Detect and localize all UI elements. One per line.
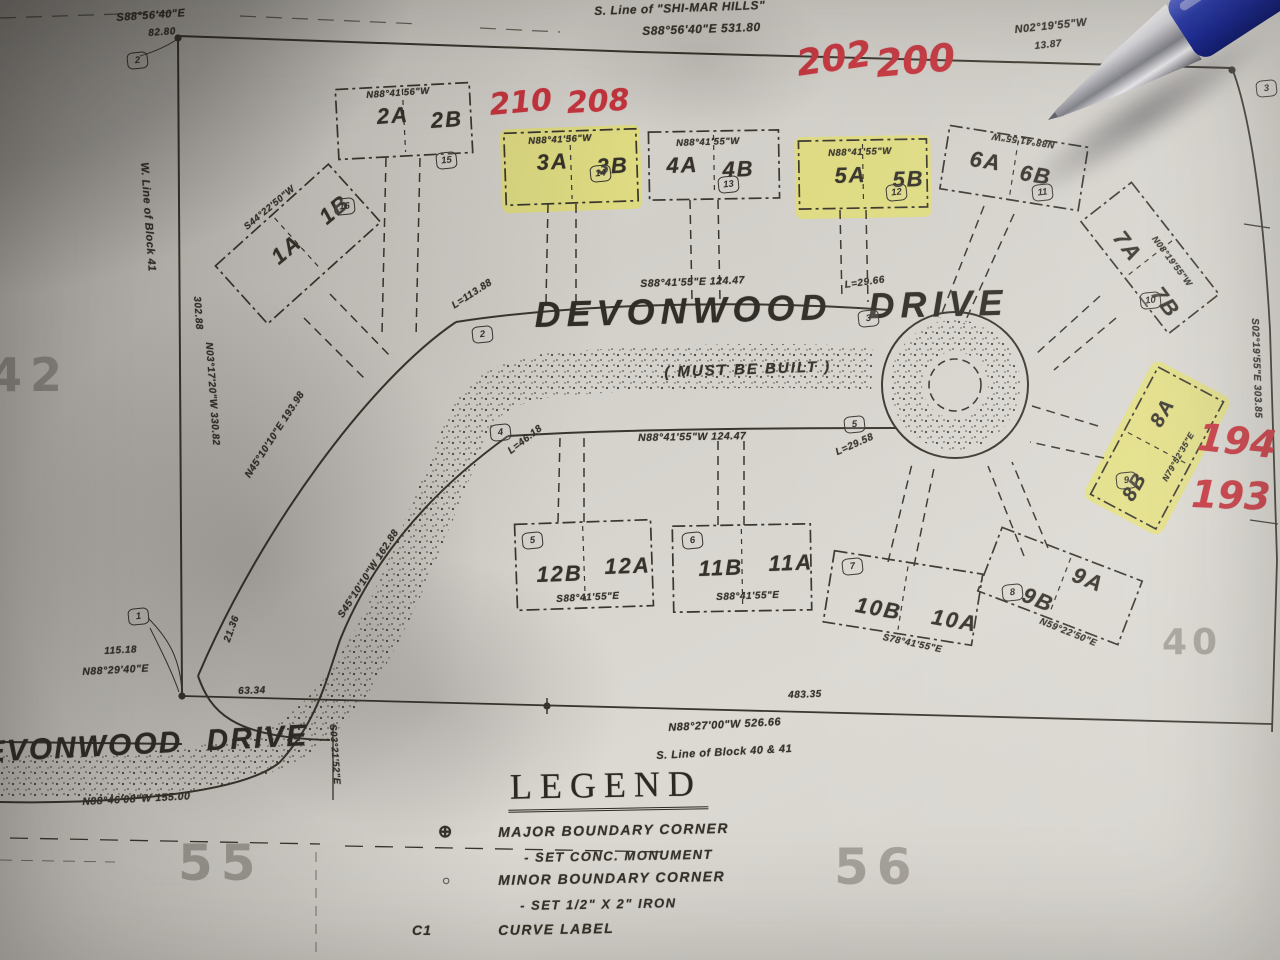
corner-marker-1: 1 — [127, 607, 150, 626]
lot9-corner-marker: 8 — [1001, 583, 1024, 602]
corner-marker-5-road: 5 — [843, 415, 866, 434]
lot-12B-label: 12B — [536, 560, 583, 588]
distance-label: 82.80 — [148, 26, 176, 39]
road-bearing-south: N88°41'55"W 124.47 — [638, 430, 746, 444]
lot3-corner-marker: 14 — [589, 164, 612, 183]
lot-11B-label: 11B — [698, 554, 744, 582]
plat-map-photo: S88°56'40"E 82.80 S. Line of "SHI-MAR HI… — [0, 0, 1280, 960]
lot-2B-label: 2B — [430, 106, 464, 134]
pen — [960, 0, 1280, 220]
lot7-corner-marker: 10 — [1139, 291, 1162, 310]
block-number-55: 55 — [178, 834, 264, 892]
major-corner-symbol-icon: ⊕ — [438, 822, 453, 842]
lot8-corner-marker: 9 — [1115, 471, 1138, 490]
lot-2A-label: 2A — [376, 102, 410, 130]
lot-12A-label: 12A — [604, 552, 651, 580]
lot-4A-label: 4A — [666, 152, 699, 179]
corner-marker-4-road: 4 — [489, 423, 512, 442]
legend-item-minor-corner-sub: - SET 1/2" X 2" IRON — [520, 895, 677, 913]
corner-marker-3-road: 3 — [857, 309, 880, 328]
handwritten-number-210: 210 — [488, 83, 553, 123]
handwritten-number-200: 200 — [874, 35, 957, 86]
lot2-corner-marker: 15 — [435, 151, 458, 170]
minor-corner-symbol-icon: ○ — [442, 872, 451, 888]
distance-label: 302.88 — [191, 296, 204, 330]
lot5-bearing: N88°41'55"W — [828, 146, 892, 159]
lot11-bearing: S88°41'55"E — [716, 590, 780, 603]
block-number-42: 42 — [0, 348, 70, 402]
lot10-corner-marker: 7 — [841, 557, 864, 576]
lot11-corner-marker: 6 — [681, 531, 704, 550]
lot-11A-label: 11A — [768, 549, 814, 577]
curve-label-symbol: C1 — [412, 922, 432, 938]
legend-item-curve-label: CURVE LABEL — [498, 920, 614, 938]
distance-label: 483.35 — [788, 689, 822, 701]
handwritten-number-193: 193 — [1190, 472, 1271, 519]
handwritten-number-208: 208 — [566, 83, 630, 121]
handwritten-number-194: 194 — [1195, 415, 1278, 467]
lot5-corner-marker: 12 — [885, 183, 908, 202]
lot4-bearing: N88°41'55"W — [676, 136, 740, 149]
legend-title: LEGEND — [508, 762, 709, 812]
distance-label: 63.34 — [238, 685, 266, 697]
lot1-corner-marker: 16 — [333, 197, 356, 216]
lot12-corner-marker: 5 — [521, 531, 544, 550]
corner-marker-2: 2 — [126, 51, 149, 70]
corner-marker-2-road: 2 — [471, 325, 494, 344]
block-number-40: 40 — [1162, 622, 1222, 663]
lot4-corner-marker: 13 — [717, 175, 740, 194]
lot-5A-label: 5A — [834, 162, 867, 189]
distance-label: 115.18 — [104, 644, 137, 657]
block-number-56: 56 — [834, 838, 920, 896]
road-stipple — [0, 336, 1004, 776]
lot-3A-label: 3A — [536, 148, 569, 176]
